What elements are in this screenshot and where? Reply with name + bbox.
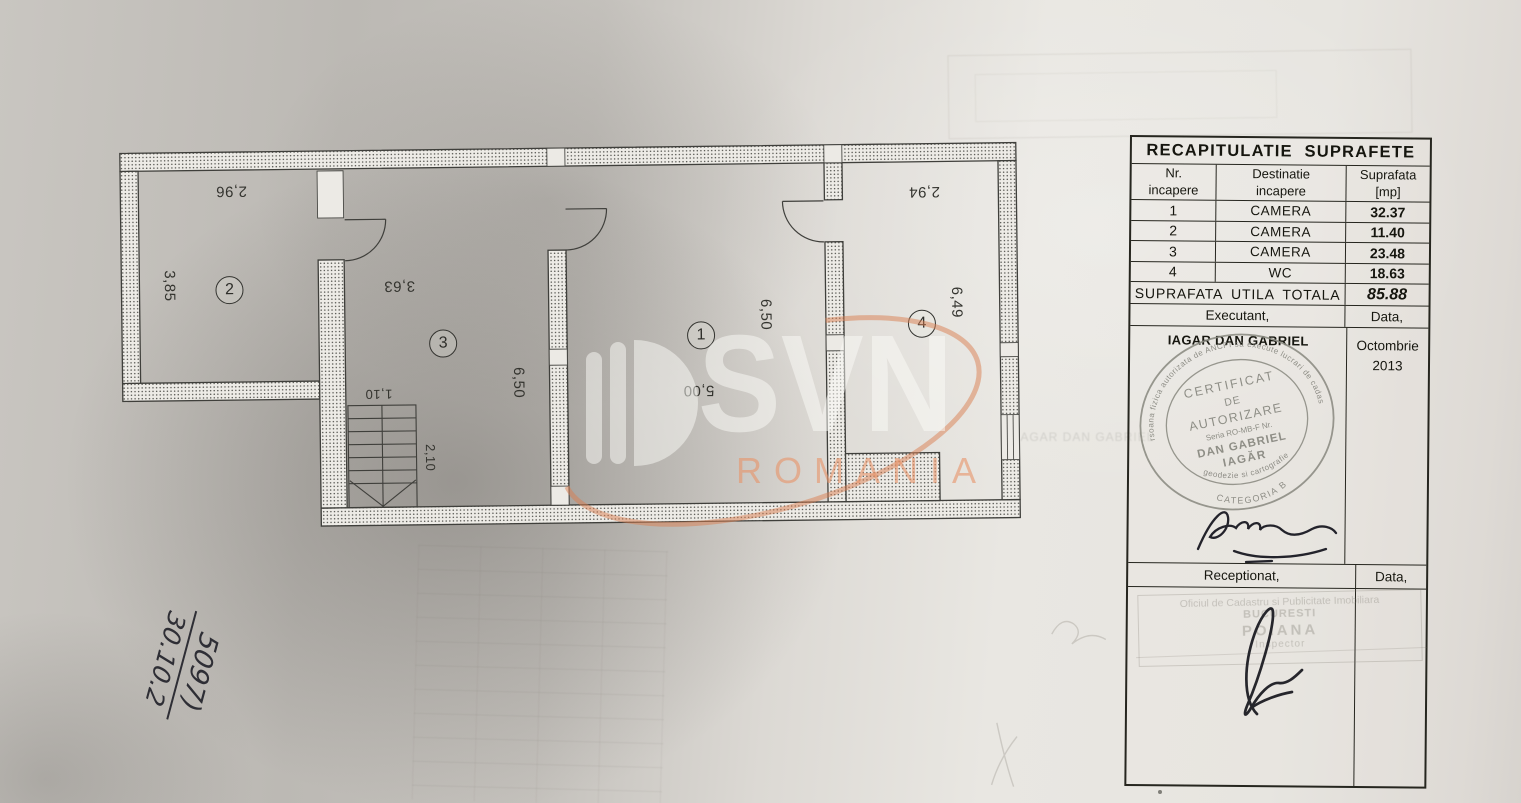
- receptionat-signature: [0, 0, 1521, 803]
- ink-dot: [1158, 790, 1162, 794]
- scanned-floorplan-photo: IAGAR DAN GABRIEL: [0, 0, 1521, 803]
